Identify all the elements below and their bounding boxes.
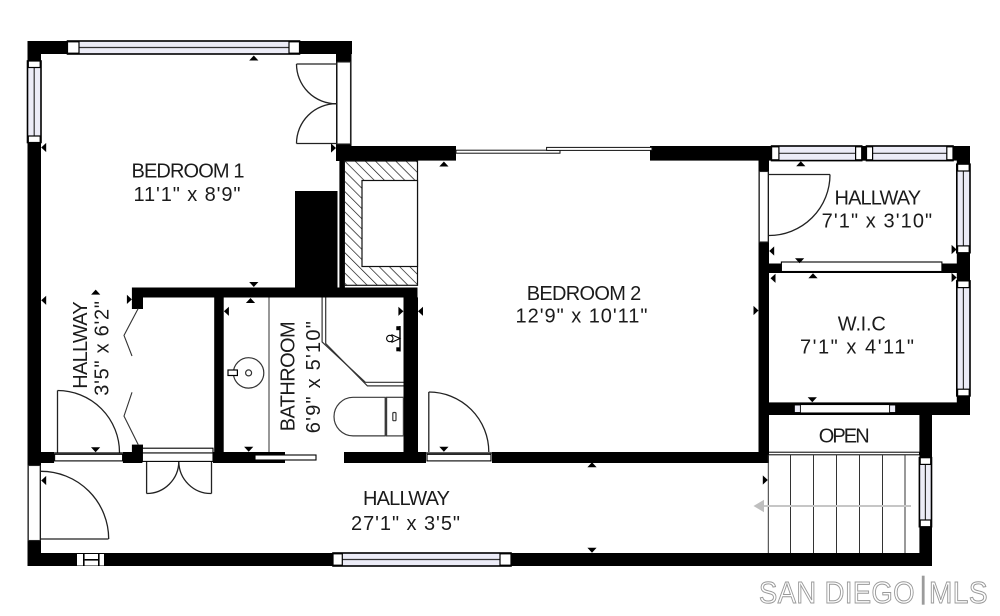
svg-text:W.I.C: W.I.C	[838, 314, 886, 336]
svg-text:12'9" x 10'11": 12'9" x 10'11"	[516, 306, 648, 328]
svg-text:MLS: MLS	[929, 576, 988, 610]
svg-text:SAN DIEGO: SAN DIEGO	[759, 576, 915, 610]
svg-text:7'1" x 4'11": 7'1" x 4'11"	[800, 336, 914, 358]
svg-text:7'1" x 3'10": 7'1" x 3'10"	[822, 210, 933, 232]
svg-text:BEDROOM 1: BEDROOM 1	[132, 160, 245, 182]
svg-text:HALLWAY: HALLWAY	[363, 488, 450, 510]
svg-text:HALLWAY: HALLWAY	[70, 301, 92, 389]
svg-text:BATHROOM: BATHROOM	[278, 321, 300, 431]
svg-text:27'1" x 3'5": 27'1" x 3'5"	[351, 513, 460, 535]
svg-text:HALLWAY: HALLWAY	[835, 187, 922, 209]
svg-text:11'1" x 8'9": 11'1" x 8'9"	[134, 184, 241, 206]
svg-text:3'5" x 6'2": 3'5" x 6'2"	[92, 301, 114, 396]
svg-text:OPEN: OPEN	[819, 426, 870, 448]
svg-text:BEDROOM 2: BEDROOM 2	[527, 283, 642, 305]
svg-text:6'9" x 5'10": 6'9" x 5'10"	[303, 321, 325, 433]
